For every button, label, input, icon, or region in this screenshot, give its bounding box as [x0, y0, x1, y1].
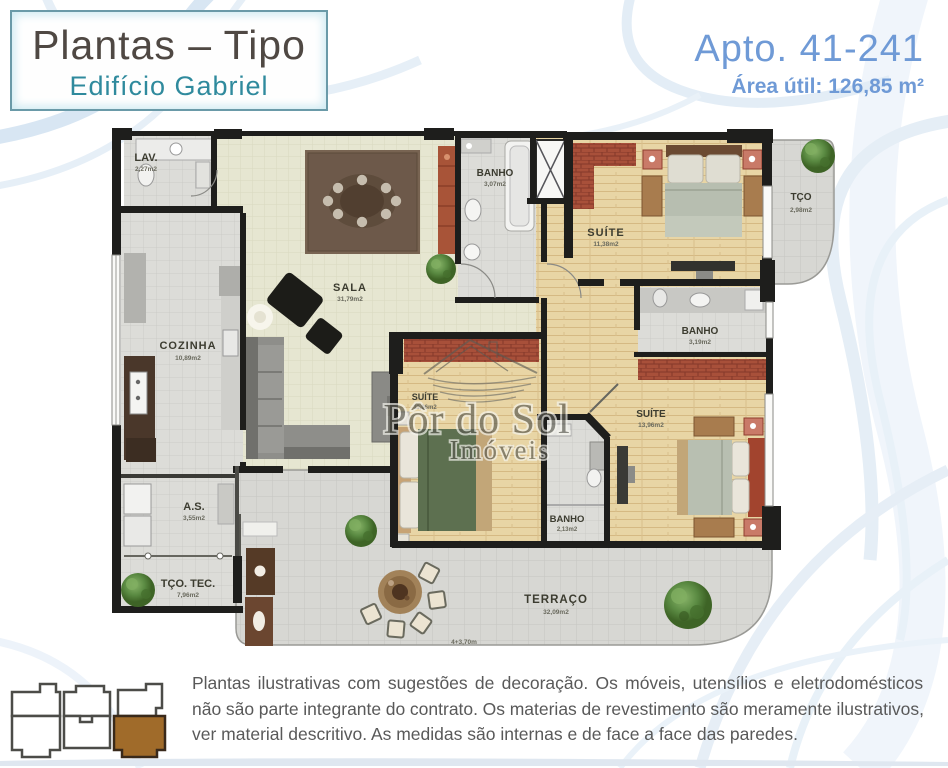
svg-text:SALA: SALA — [333, 282, 367, 294]
svg-text:LAV.: LAV. — [134, 152, 157, 164]
svg-text:COZINHA: COZINHA — [159, 340, 216, 352]
svg-text:10,89m2: 10,89m2 — [175, 355, 201, 362]
svg-text:TÇO: TÇO — [790, 192, 811, 203]
svg-text:2,98m2: 2,98m2 — [790, 207, 812, 214]
svg-text:2,27m2: 2,27m2 — [135, 166, 157, 173]
svg-text:4+3,70m: 4+3,70m — [451, 639, 477, 646]
svg-text:A.S.: A.S. — [183, 501, 204, 513]
svg-text:3,07m2: 3,07m2 — [484, 181, 506, 188]
svg-text:11,38m2: 11,38m2 — [593, 241, 619, 248]
svg-text:7,96m2: 7,96m2 — [177, 592, 199, 599]
svg-text:3,19m2: 3,19m2 — [689, 339, 711, 346]
svg-text:TERRAÇO: TERRAÇO — [524, 594, 588, 606]
svg-text:SUÍTE: SUÍTE — [636, 407, 666, 420]
svg-text:Imóveis: Imóveis — [450, 435, 551, 465]
svg-text:32,09m2: 32,09m2 — [543, 609, 569, 616]
svg-text:BANHO: BANHO — [682, 326, 719, 337]
svg-text:3,55m2: 3,55m2 — [183, 515, 205, 522]
svg-text:SUÍTE: SUÍTE — [587, 226, 624, 239]
svg-text:2,13m2: 2,13m2 — [557, 527, 578, 533]
svg-text:31,79m2: 31,79m2 — [337, 296, 363, 303]
svg-text:BANHO: BANHO — [477, 168, 514, 179]
svg-text:13,96m2: 13,96m2 — [638, 422, 664, 429]
svg-text:TÇO. TEC.: TÇO. TEC. — [161, 578, 215, 590]
svg-text:BANHO: BANHO — [550, 514, 585, 525]
